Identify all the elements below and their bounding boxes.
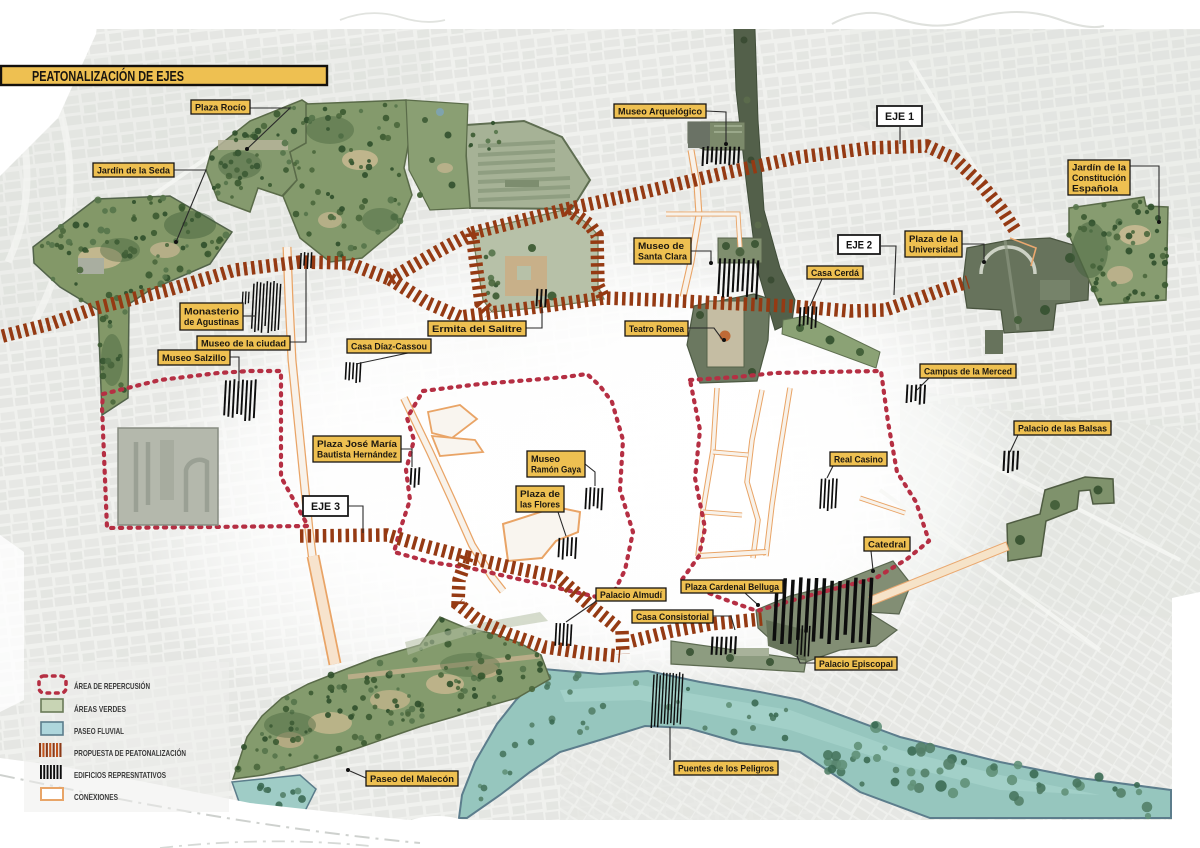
svg-text:las Flores: las Flores: [520, 500, 560, 510]
svg-text:Palacio Episcopal: Palacio Episcopal: [819, 659, 893, 669]
svg-text:ÁREAS VERDES: ÁREAS VERDES: [74, 704, 126, 714]
svg-text:Casa Consistorial: Casa Consistorial: [636, 612, 709, 622]
svg-text:Museo: Museo: [531, 454, 560, 464]
svg-text:Museo de la ciudad: Museo de la ciudad: [201, 338, 286, 348]
svg-text:Ramón Gaya: Ramón Gaya: [531, 465, 582, 475]
svg-text:Casa Díaz-Cassou: Casa Díaz-Cassou: [351, 341, 427, 351]
svg-text:EJE 3: EJE 3: [311, 501, 340, 513]
svg-text:Palacio Almudí: Palacio Almudí: [600, 590, 662, 600]
svg-text:Paseo del Malecón: Paseo del Malecón: [370, 774, 454, 784]
svg-text:Plaza Cardenal Belluga: Plaza Cardenal Belluga: [685, 582, 780, 592]
svg-text:Plaza José María: Plaza José María: [317, 439, 398, 449]
svg-text:Ermita del Salitre: Ermita del Salitre: [432, 324, 522, 334]
svg-text:Santa Clara: Santa Clara: [638, 252, 688, 262]
svg-text:Real Casino: Real Casino: [834, 454, 883, 464]
svg-text:PEATONALIZACIÓN DE EJES: PEATONALIZACIÓN DE EJES: [32, 67, 184, 85]
svg-text:Jardín de la Seda: Jardín de la Seda: [97, 165, 171, 175]
svg-text:Plaza Rocío: Plaza Rocío: [195, 102, 246, 112]
svg-text:PROPUESTA DE PEATONALIZACIÓN: PROPUESTA DE PEATONALIZACIÓN: [74, 747, 186, 758]
svg-text:Casa Cerdá: Casa Cerdá: [811, 268, 860, 278]
svg-text:ÁREA DE REPERCUSIÓN: ÁREA DE REPERCUSIÓN: [74, 680, 150, 691]
svg-text:Española: Española: [1072, 183, 1119, 193]
svg-text:EDIFICIOS REPRESNTATIVOS: EDIFICIOS REPRESNTATIVOS: [74, 770, 166, 780]
svg-text:Museo Salzillo: Museo Salzillo: [162, 353, 226, 363]
svg-text:Constitución: Constitución: [1072, 173, 1126, 183]
svg-text:Bautista Hernández: Bautista Hernández: [317, 450, 397, 460]
svg-text:Campus de la Merced: Campus de la Merced: [924, 366, 1012, 376]
svg-text:Teatro Romea: Teatro Romea: [629, 324, 685, 334]
svg-text:PASEO FLUVIAL: PASEO FLUVIAL: [74, 726, 124, 736]
svg-text:Plaza de la: Plaza de la: [909, 234, 959, 244]
svg-text:de Agustinas: de Agustinas: [184, 317, 239, 327]
svg-text:CONEXIONES: CONEXIONES: [74, 792, 118, 802]
svg-text:Palacio de las Balsas: Palacio de las Balsas: [1018, 423, 1107, 433]
svg-text:Jardín de la: Jardín de la: [1072, 162, 1127, 172]
svg-text:Museo Arquelógico: Museo Arquelógico: [618, 106, 702, 116]
svg-text:Museo de: Museo de: [638, 241, 684, 251]
svg-text:Universidad: Universidad: [909, 245, 958, 255]
svg-text:Plaza de: Plaza de: [520, 489, 560, 499]
svg-text:EJE 1: EJE 1: [885, 111, 914, 123]
svg-text:Puentes de los Peligros: Puentes de los Peligros: [678, 763, 774, 773]
svg-text:Monasterio: Monasterio: [184, 307, 239, 317]
svg-text:Catedral: Catedral: [868, 539, 906, 549]
svg-text:EJE 2: EJE 2: [846, 240, 872, 252]
